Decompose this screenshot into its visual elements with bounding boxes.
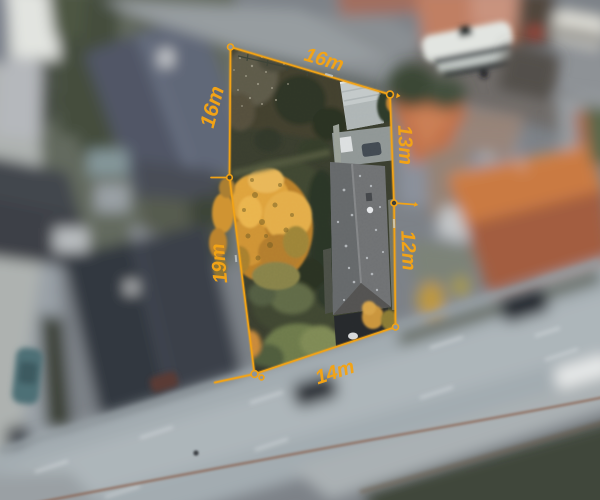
svg-text:12m: 12m	[396, 230, 419, 271]
svg-text:13m: 13m	[393, 125, 416, 166]
svg-text:19m: 19m	[207, 243, 232, 285]
